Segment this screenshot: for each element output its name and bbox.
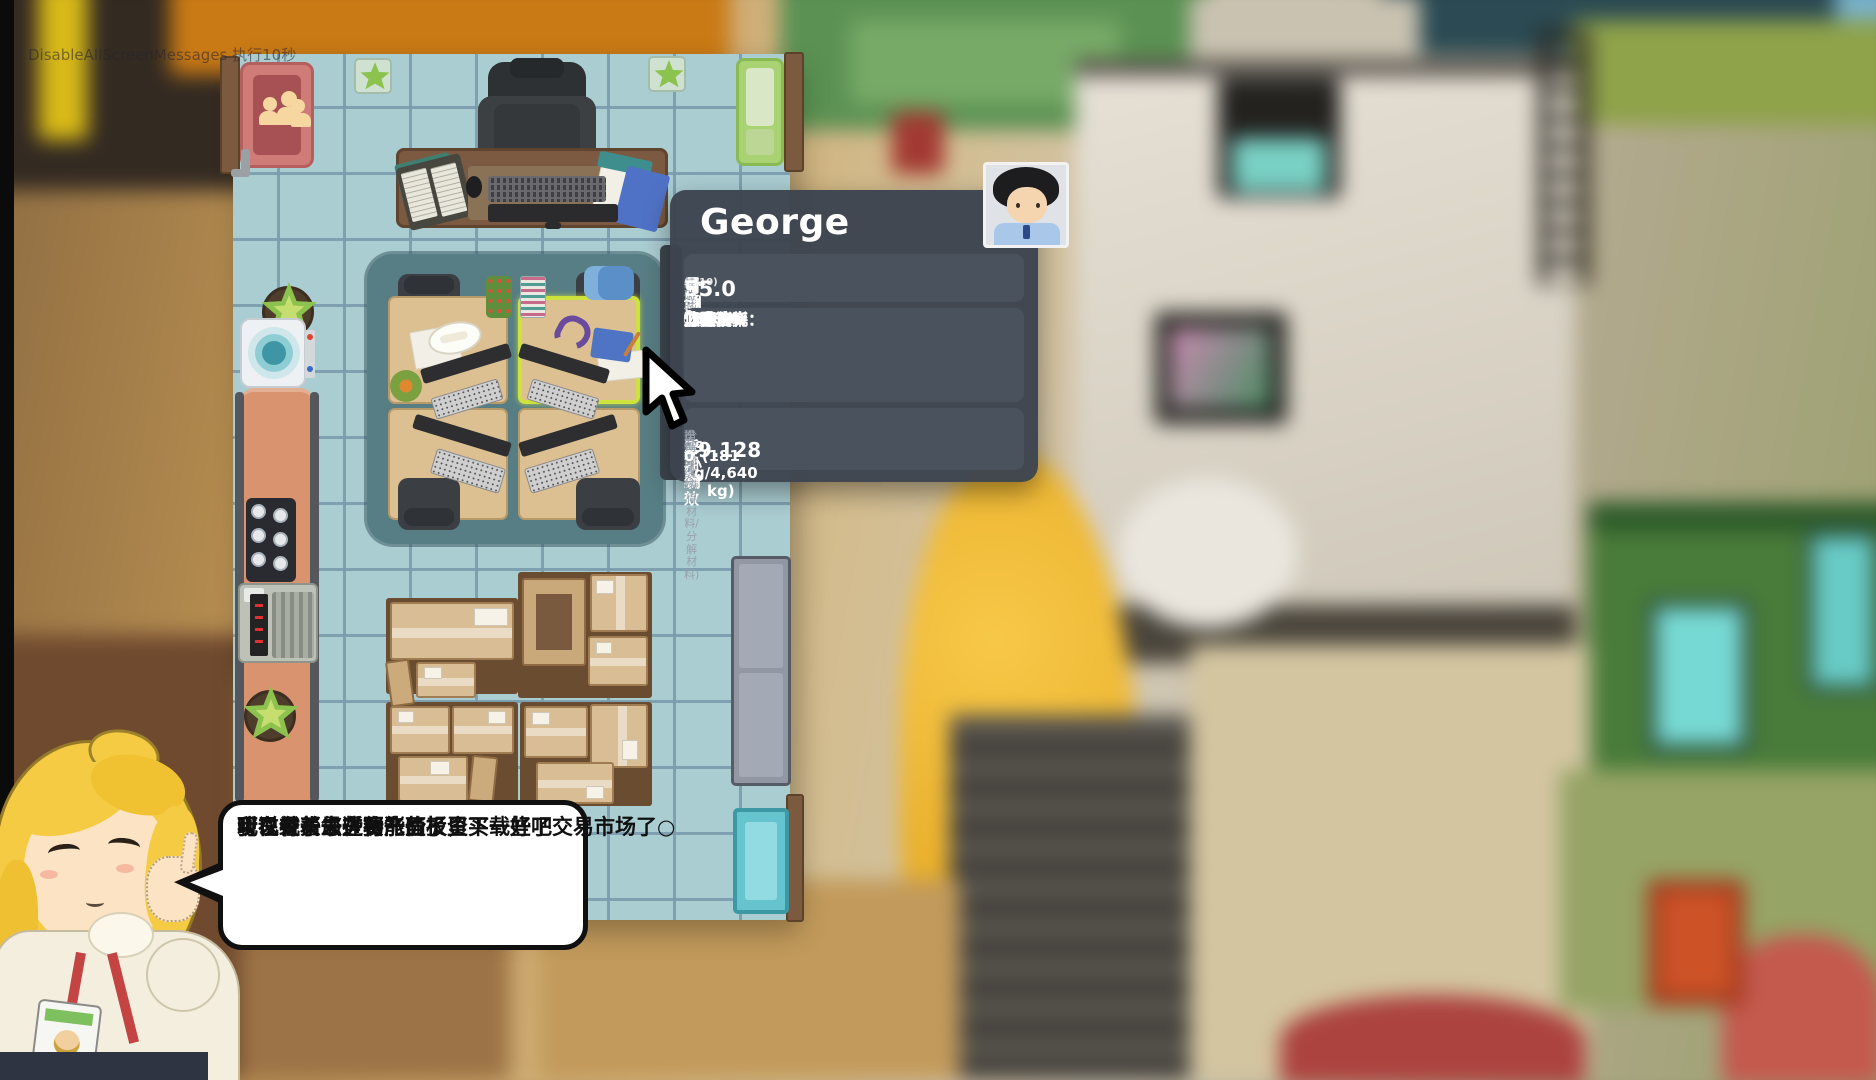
bg-red-mushroom-1 (1280, 995, 1585, 1080)
bone (439, 330, 468, 344)
floor-plant-tile (354, 58, 392, 94)
box-label (488, 711, 506, 724)
blush (116, 864, 134, 873)
stat-value: 10.0 (684, 309, 723, 328)
bg-white-pillows (1118, 478, 1298, 628)
avatar-face (1007, 187, 1047, 223)
cardboard-box[interactable] (390, 706, 450, 754)
game-screen: DisableAllScreenMessages 执行10秒 (0, 0, 1876, 1080)
bg-yellow-pole (38, 0, 88, 140)
flower-tray (486, 276, 512, 318)
coffee-cup (273, 556, 288, 571)
cardboard-box[interactable] (590, 704, 648, 768)
washer-side-panel (305, 330, 315, 378)
box-tape (418, 678, 474, 686)
led-text (255, 628, 263, 631)
box-tape (454, 726, 512, 734)
bg-roof-right (1570, 20, 1876, 125)
desk-plant (390, 370, 422, 402)
avatar-eye (1016, 203, 1020, 208)
box-tape (400, 776, 466, 784)
employee-performance-box: 近期绩效 工作时长 29 小时 综合评分 49.128 摸鱼次数 0 分解绩效(… (684, 408, 1024, 470)
bg-orange-screen (1648, 880, 1744, 1006)
chair-backrest (404, 276, 454, 294)
bg-red-box (892, 112, 944, 174)
cabinet-door (739, 673, 783, 777)
box-tape (616, 576, 625, 630)
potted-plant[interactable] (242, 686, 300, 744)
employee-tooltip-panel: George 部门 骨刨部 级别 普通员工 (7/10) 基础时薪 55.0 (670, 190, 1038, 482)
cardboard-box[interactable] (588, 636, 648, 686)
badge-stripe (44, 1008, 93, 1026)
boss-chair-headrest (510, 58, 564, 78)
box-tape (590, 658, 646, 666)
door-panel (746, 68, 774, 126)
base-wage-value: 55.0 (684, 278, 736, 300)
printer-vent (272, 592, 314, 658)
door-handle (231, 169, 250, 177)
coffee-cup (251, 504, 266, 519)
people-icon (291, 113, 311, 127)
coffee-cup (273, 532, 288, 547)
box-label (586, 786, 604, 799)
cardboard-box[interactable] (452, 706, 514, 754)
bg-green-building-roof (1588, 502, 1876, 532)
meeting-room-door[interactable] (240, 62, 314, 168)
plant-icon (654, 60, 684, 90)
bg-window-2-glass (1170, 328, 1270, 408)
bg-teal-window-a (1648, 600, 1750, 752)
box-flap (468, 755, 499, 803)
open-box[interactable] (522, 578, 586, 666)
assistant-collar (88, 912, 154, 958)
people-icon (259, 111, 279, 125)
bg-blue-corner (1835, 0, 1876, 20)
blush (40, 870, 58, 879)
bubble-line: 我已经帮您在功能面板里下载好了交易市场了○ (237, 813, 675, 841)
coffee-cup (273, 508, 288, 523)
employee-name: George (700, 202, 850, 243)
cardboard-box[interactable] (416, 662, 476, 698)
chair-backrest (404, 508, 454, 526)
teal-mat-inner (745, 822, 777, 900)
blue-notebook (590, 327, 634, 362)
box-label (474, 608, 508, 626)
debug-console-message: DisableAllScreenMessages 执行10秒 (28, 44, 296, 65)
box-tape (392, 628, 512, 638)
box-label (424, 667, 442, 679)
bg-ladder (1538, 30, 1590, 285)
decompose-value: (181 kg/4,640 kg) (684, 448, 758, 500)
bg-building-roofline (1075, 60, 1575, 76)
cardboard-box[interactable] (390, 602, 514, 660)
box-label (532, 712, 550, 725)
cabinet-door (739, 564, 783, 668)
coffee-cup (251, 528, 266, 543)
employee-avatar (983, 162, 1069, 248)
led-text (255, 640, 263, 643)
employee-info-bar: 部门 骨刨部 级别 普通员工 (7/10) 基础时薪 55.0 (684, 254, 1024, 302)
cardboard-box[interactable] (590, 574, 648, 632)
build-record-value: 0 (684, 448, 694, 465)
indicator-light (307, 334, 313, 340)
box-label (622, 740, 638, 760)
plant-icon (360, 62, 390, 92)
door-panel (746, 129, 774, 155)
washer-drum (262, 341, 286, 365)
bg-teal-window-b (1806, 530, 1876, 692)
green-door[interactable] (736, 58, 784, 166)
bg-staircase (950, 715, 1192, 1080)
people-icon (263, 97, 277, 111)
floor-plant-tile (648, 56, 686, 92)
blue-duffel-bag (584, 266, 634, 300)
office-printer[interactable] (238, 583, 318, 663)
tutorial-speech-bubble[interactable]: 现在有了一些资产 可以试着去进行一些投资 听说骨头最近要涨价了，买一些吧 我已经… (218, 800, 588, 950)
assistant-sleeve (146, 938, 220, 1012)
coffee-cup-tray[interactable] (246, 498, 296, 582)
printer-display (250, 594, 268, 656)
led-text (255, 604, 263, 607)
assistant-character[interactable] (0, 740, 244, 1080)
monitor (488, 204, 618, 222)
box-tape (392, 726, 448, 734)
mouse (466, 176, 482, 198)
cardboard-box[interactable] (398, 756, 468, 802)
bg-red-mushroom-2 (1722, 935, 1876, 1080)
avatar-tie (1023, 225, 1030, 239)
monitor-stand (545, 222, 561, 229)
bg-window-1-glass (1232, 138, 1326, 192)
box-label (596, 580, 614, 594)
open-box-inside (536, 594, 572, 650)
washing-machine[interactable] (240, 318, 306, 388)
employee-stats-box: ♣ 幸运： 15.0% ♠ 力量： 80.0 ♥ 好感度： 5% ▶ 速度： 8… (684, 308, 1024, 402)
box-label (596, 642, 612, 654)
chair-backrest (582, 508, 634, 526)
indicator-light (307, 366, 313, 372)
cardboard-box[interactable] (536, 762, 614, 804)
keyboard (488, 176, 606, 202)
door-frame-right (784, 52, 804, 172)
desk-organizer (520, 276, 546, 318)
coffee-cup (251, 552, 266, 567)
mouth (86, 898, 104, 907)
box-label (430, 761, 450, 775)
cardboard-box[interactable] (524, 706, 588, 758)
box-tape (526, 728, 586, 736)
avatar-eye (1036, 203, 1040, 208)
assistant-skirt (0, 1052, 208, 1080)
box-label (398, 711, 414, 723)
led-text (255, 616, 263, 619)
teal-mat[interactable] (733, 808, 789, 914)
mouse-cursor (640, 346, 710, 438)
door-frame-left (220, 56, 240, 174)
grey-cabinet[interactable] (731, 556, 791, 786)
